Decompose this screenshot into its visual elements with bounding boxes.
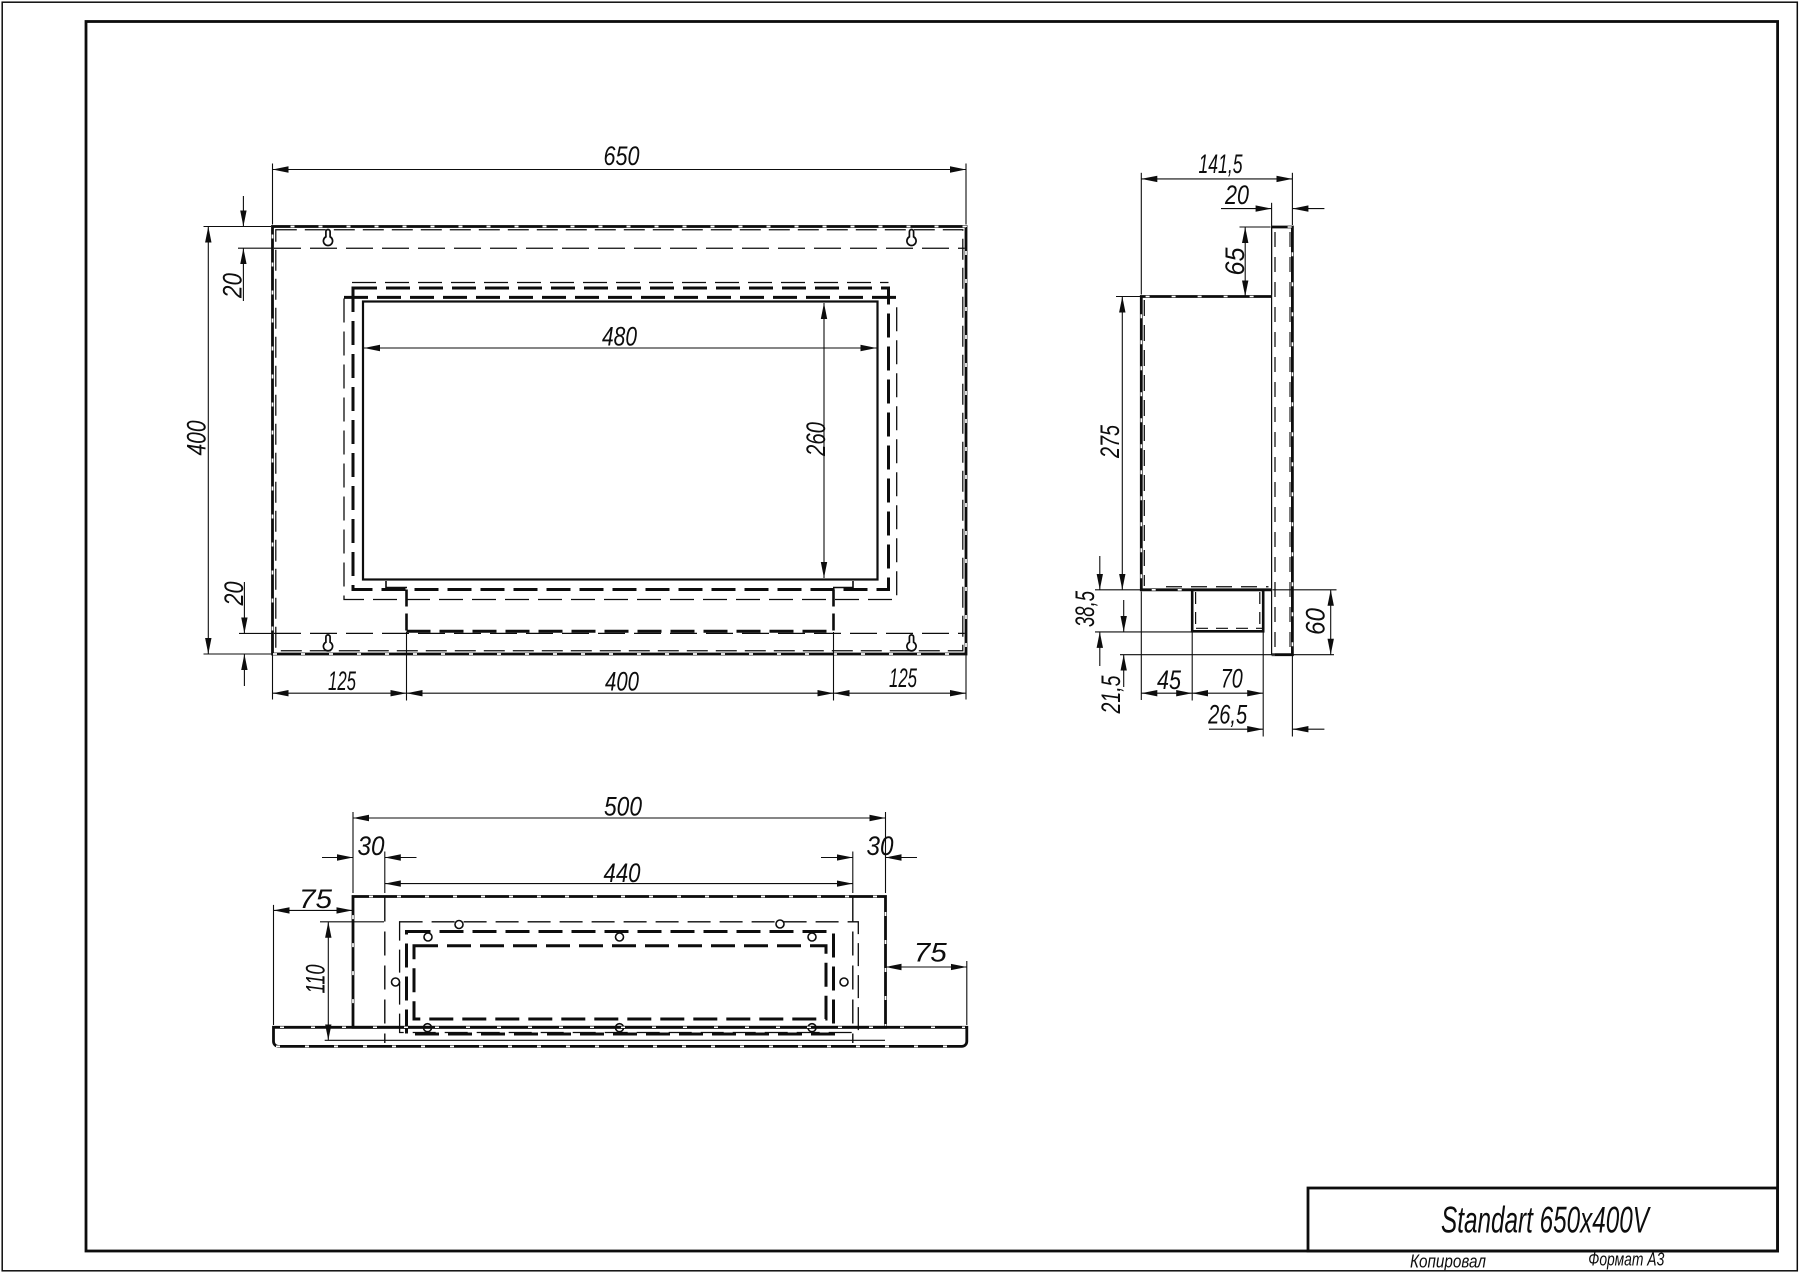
svg-text:21,5: 21,5 [1096,675,1126,714]
svg-text:400: 400 [605,667,639,697]
svg-text:650: 650 [604,141,640,171]
svg-text:125: 125 [328,666,357,696]
svg-text:20: 20 [218,273,248,299]
svg-text:Формат А3: Формат А3 [1588,1249,1665,1270]
svg-text:125: 125 [889,663,918,693]
svg-text:30: 30 [358,831,385,861]
svg-text:440: 440 [604,858,641,888]
svg-text:60: 60 [1300,608,1330,635]
svg-text:141,5: 141,5 [1199,149,1244,179]
svg-text:26,5: 26,5 [1207,700,1247,730]
svg-text:275: 275 [1095,424,1125,458]
svg-text:20: 20 [219,582,249,607]
svg-text:65: 65 [1220,247,1250,276]
svg-text:70: 70 [1221,664,1243,694]
svg-text:30: 30 [867,831,894,861]
svg-text:500: 500 [604,792,642,822]
svg-text:Копировал: Копировал [1410,1251,1486,1272]
svg-text:45: 45 [1157,665,1182,695]
svg-text:20: 20 [1224,180,1249,210]
svg-text:38,5: 38,5 [1070,590,1100,627]
svg-text:Standart 650x400V: Standart 650x400V [1441,1199,1651,1240]
svg-text:75: 75 [299,884,333,914]
svg-text:260: 260 [801,422,831,457]
svg-text:110: 110 [300,965,330,994]
svg-text:75: 75 [914,938,948,968]
svg-text:480: 480 [602,322,637,352]
svg-text:400: 400 [182,421,212,456]
